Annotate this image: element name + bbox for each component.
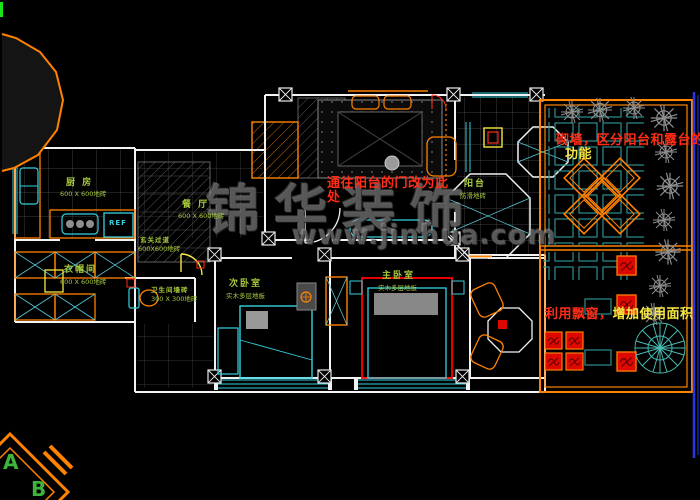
balcony-floor: 防滑地砖 (460, 193, 486, 200)
cad-canvas[interactable]: 锦华装饰 www.jinhua.com 厨 房 600 X 600地砖 衣帽间 … (0, 0, 700, 500)
bedroom2-floor: 实木多层地板 (226, 293, 265, 300)
bedroom2-label: 次卧室 (229, 280, 262, 289)
bathroom-label: 卫生间墙砖 (151, 287, 189, 294)
cloakroom-area (15, 252, 135, 320)
bathroom-floor: 300 X 300地砖 (151, 296, 197, 303)
nightstand-icon (350, 281, 362, 294)
master-bedroom-area (350, 278, 532, 378)
tree-icon (635, 323, 685, 373)
nightstand-icon (452, 281, 464, 294)
logo-letter-a: A (3, 450, 18, 474)
armchair-icon (469, 281, 505, 319)
watermark-url-text: www.jinhua.com (292, 220, 557, 251)
fridge-label: REF (109, 219, 127, 227)
master-label: 主卧室 (382, 272, 415, 281)
dining-floor: 600 X 600地砖 (178, 213, 224, 220)
table-octagon-icon (488, 308, 532, 352)
hallway-floor: 600X600地砖 (138, 246, 180, 253)
door-leaf-icon (297, 283, 316, 310)
cloakroom-floor: 600 X 600地砖 (60, 279, 106, 286)
hallway-label: 玄关过道 (140, 237, 170, 244)
armchair-icon (469, 333, 505, 371)
logo-arc-top-left (0, 2, 63, 171)
balcony-label: 阳台 (464, 180, 486, 189)
bed-icon (240, 306, 312, 378)
kitchen-label: 厨 房 (66, 179, 93, 188)
reading-bay (469, 281, 532, 371)
logo-letter-b: B (31, 477, 46, 500)
annotation-door-note: 通往阳台的门改为此 处 (327, 177, 449, 206)
cloakroom-label: 衣帽间 (64, 266, 97, 275)
drain-icon (127, 279, 135, 287)
desk-icon (218, 328, 238, 374)
kitchen-floor: 600 X 600地砖 (60, 191, 106, 198)
cushion-icon (498, 320, 507, 329)
dining-label: 餐 厅 (182, 201, 209, 210)
bed-icon (362, 278, 452, 378)
annotation-bay-note: 利用飘窗，增加使用面积 (545, 308, 694, 322)
annotation-wall-note: 砌墙，区分阳台和露台的 功能 (556, 134, 700, 163)
master-floor: 实木多层地板 (378, 285, 417, 292)
